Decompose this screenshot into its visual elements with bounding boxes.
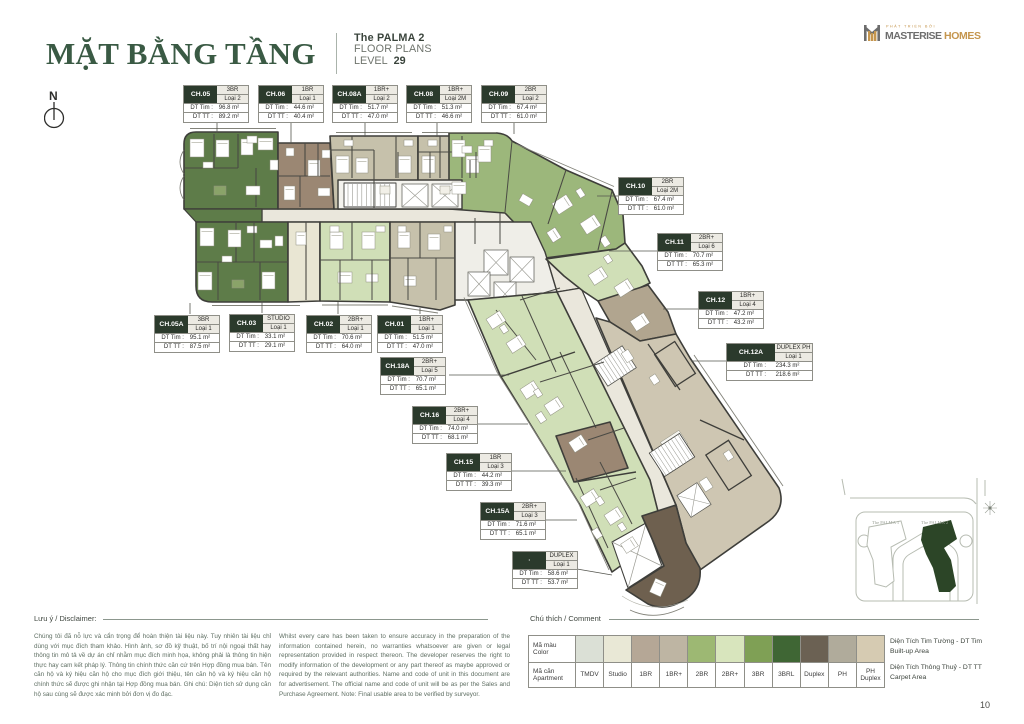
svg-text:The PALMA 2: The PALMA 2 [921,520,949,525]
svg-text:The PALMA 1: The PALMA 1 [872,520,900,525]
